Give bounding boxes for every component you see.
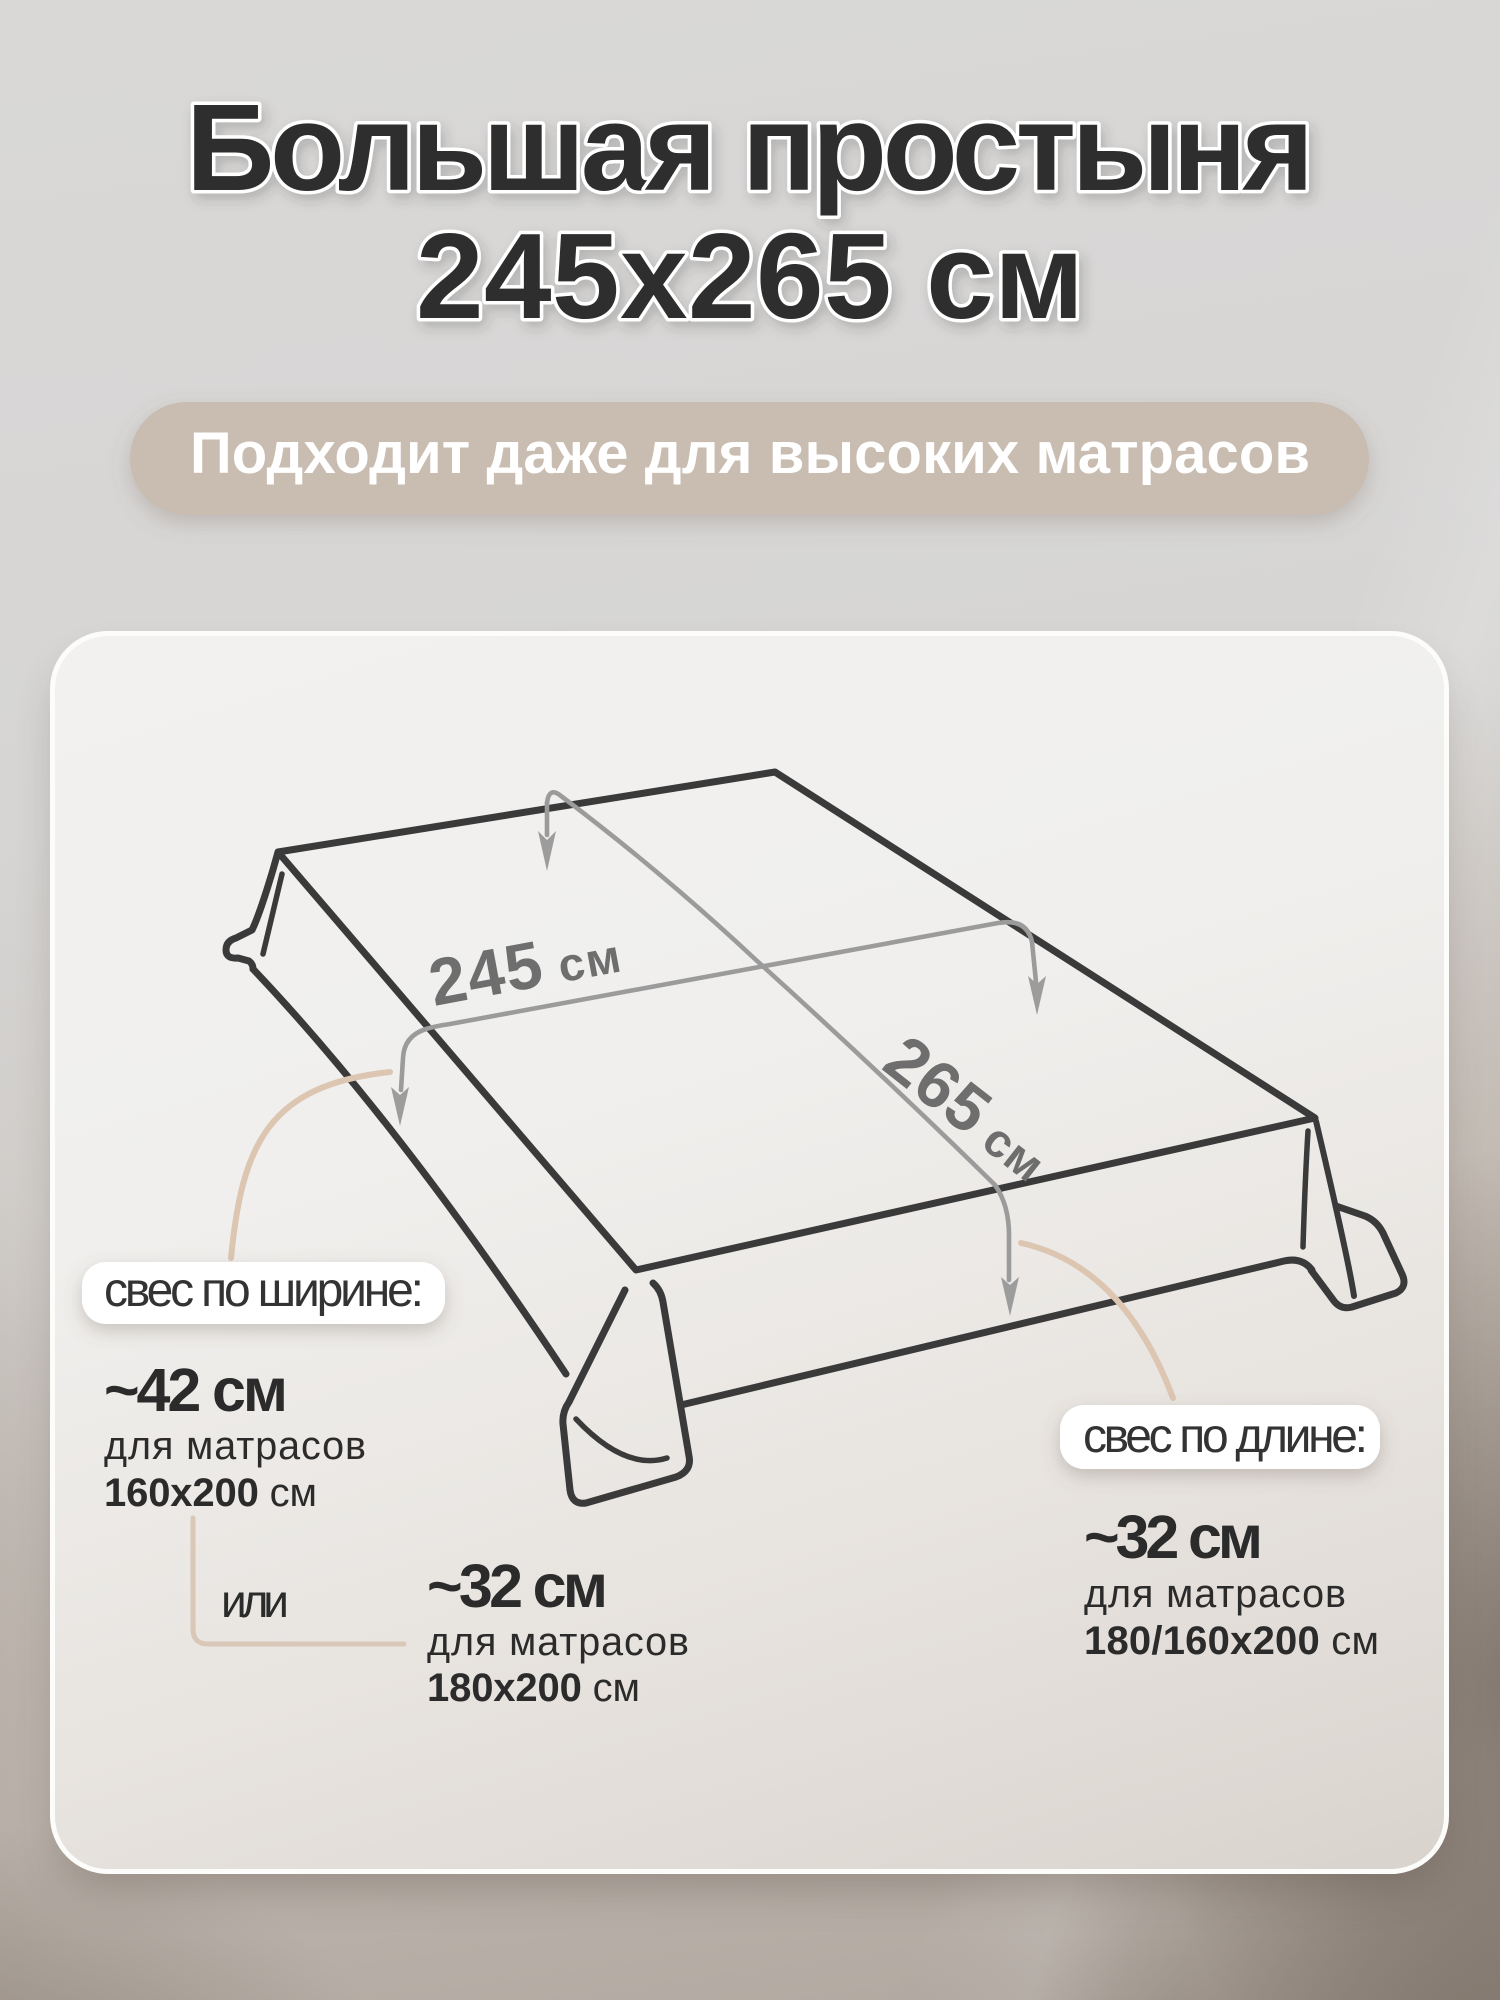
- svg-text:свес по длине:: свес по длине:: [1083, 1410, 1368, 1463]
- svg-text:~32 см: ~32 см: [427, 1552, 608, 1620]
- svg-text:Подходит даже для высоких матр: Подходит даже для высоких матрасов: [190, 421, 1310, 486]
- svg-text:180x200 см: 180x200 см: [427, 1666, 640, 1710]
- svg-text:~42 см: ~42 см: [104, 1356, 288, 1424]
- svg-text:Большая простыня: Большая простыня: [186, 80, 1314, 217]
- svg-text:245x265 см: 245x265 см: [416, 208, 1084, 344]
- svg-text:180/160x200 см: 180/160x200 см: [1084, 1619, 1379, 1663]
- svg-text:свес по ширине:: свес по ширине:: [104, 1264, 424, 1317]
- svg-text:для матрасов: для матрасов: [1084, 1572, 1346, 1616]
- svg-text:245 см: 245 см: [423, 912, 625, 1020]
- svg-text:или: или: [221, 1575, 289, 1627]
- svg-text:для матрасов: для матрасов: [104, 1424, 366, 1468]
- svg-text:~32 см: ~32 см: [1084, 1503, 1263, 1571]
- svg-text:160x200 см: 160x200 см: [104, 1471, 317, 1515]
- svg-text:265 см: 265 см: [871, 1021, 1065, 1195]
- svg-text:для матрасов: для матрасов: [427, 1620, 689, 1664]
